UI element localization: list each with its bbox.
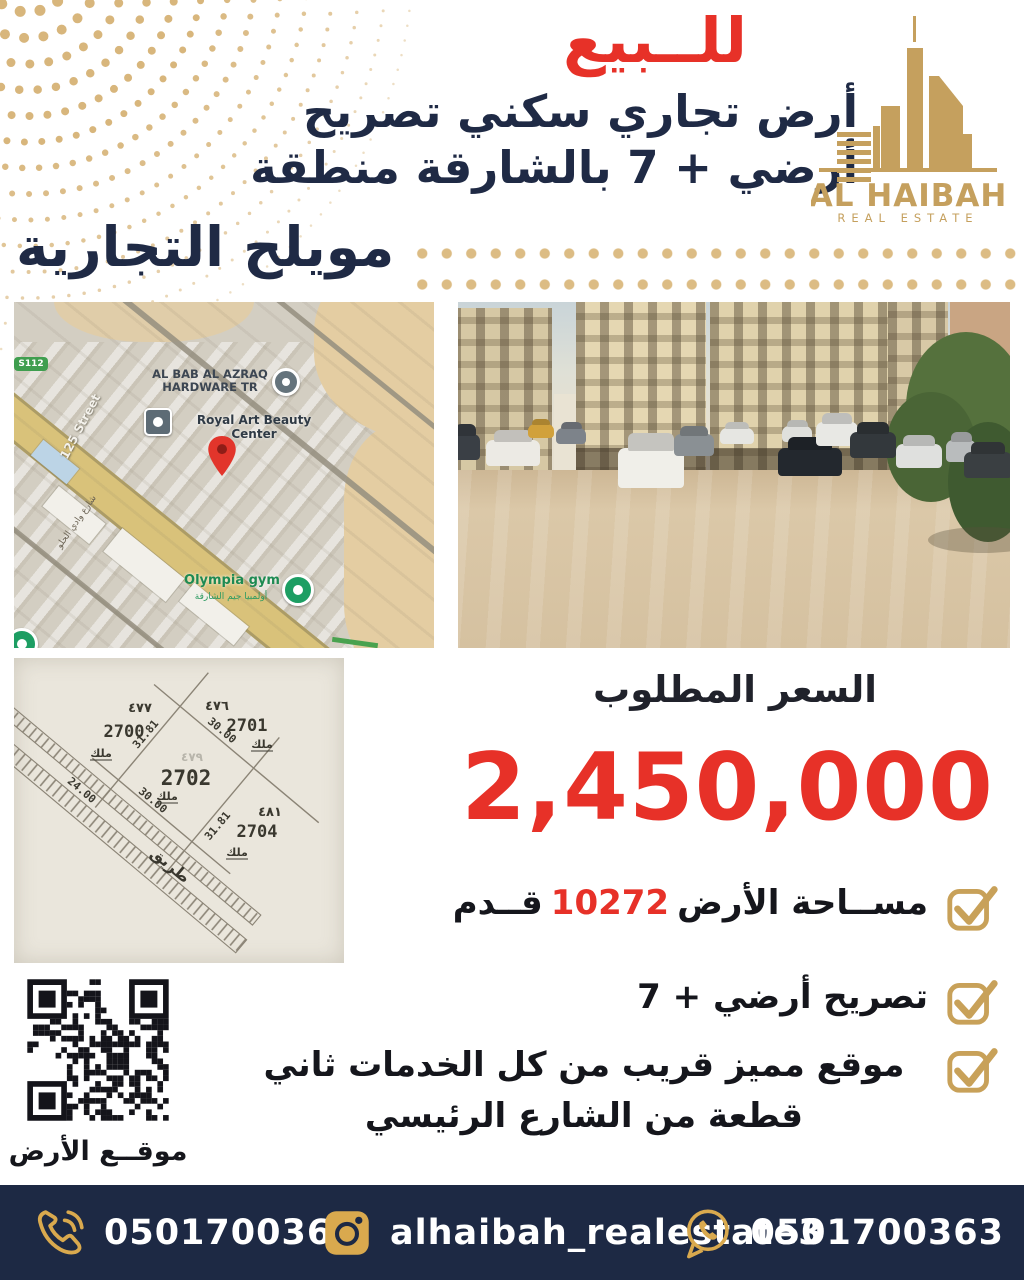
sketch-owner-label: ملك xyxy=(251,738,273,751)
sketch-owner-label: ملك xyxy=(156,790,178,803)
price-value: 2,450,000 xyxy=(440,736,1015,838)
sketch-plot-num-ar: ٤٧٩ xyxy=(181,750,204,764)
real-estate-flyer: للــبيع أرض تجاري سكني تصريح أرضي + 7 با… xyxy=(0,0,1024,1280)
al-haibah-logo: AL HAIBAH REAL ESTATE xyxy=(811,14,1006,224)
sketch-neighbor1-num: ٤٧٧ xyxy=(128,701,152,716)
check-icon xyxy=(944,876,1002,934)
photo-car xyxy=(458,434,480,460)
headline-line1: أرض تجاري سكني تصريح xyxy=(185,84,858,140)
sketch-dim-bottom-right: 31.81 xyxy=(202,809,233,843)
sketch-neighbor2-plot: 2701 xyxy=(227,716,268,736)
sketch-owner-label: ملك xyxy=(90,747,112,760)
logo-name: AL HAIBAH xyxy=(811,178,1006,214)
headline-line2: أرضي + 7 بالشارقة منطقة xyxy=(185,140,858,196)
area-value: 10272 xyxy=(551,883,669,923)
photo-car xyxy=(556,428,586,444)
gold-dots-row-decoration xyxy=(408,236,1024,298)
footer-contact-bar: 0501700363 alhaibah_realestate3 05017003… xyxy=(0,1185,1024,1280)
photo-car xyxy=(850,432,896,458)
photo-car xyxy=(964,452,1010,478)
photo-car xyxy=(896,444,942,468)
photo-car xyxy=(674,434,714,456)
map-poi-gym-ar: أولمبيا جيم الشارقة xyxy=(176,592,286,602)
map-poi-hardware: AL BAB AL AZRAQ HARDWARE TR xyxy=(140,368,280,394)
map-pin-gym xyxy=(282,574,314,606)
sketch-owner-label: ملك xyxy=(226,846,248,859)
phone-number-2: 0501700363 xyxy=(750,1213,1004,1253)
sketch-neighbor3-plot: 2704 xyxy=(237,822,278,842)
feature-permit-text: تصريح أرضي + 7 xyxy=(637,972,928,1023)
map-pin-beauty xyxy=(144,408,172,436)
price-label: السعر المطلوب xyxy=(460,668,1010,711)
map-pin-hardware xyxy=(272,368,300,396)
feature-location-text: موقع مميز قريب من كل الخدمات ثاني قطعة م… xyxy=(240,1040,928,1142)
photo-car xyxy=(720,428,754,444)
feature-area-text: مســاحة الأرض10272قــدم xyxy=(453,878,928,929)
qr-block: موقــع الأرض xyxy=(8,968,188,1167)
sketch-plot-number: 2702 xyxy=(161,766,212,790)
feature-permit: تصريح أرضي + 7 xyxy=(637,972,1002,1028)
instagram-icon xyxy=(318,1204,376,1262)
qr-caption: موقــع الأرض xyxy=(8,1136,188,1167)
property-headline: أرض تجاري سكني تصريح أرضي + 7 بالشارقة م… xyxy=(185,84,858,196)
land-photo xyxy=(458,302,1010,648)
sketch-neighbor2-num: ٤٧٦ xyxy=(205,699,229,714)
map-poi-beauty: Royal Art Beauty Center xyxy=(174,414,334,442)
logo-building-icon xyxy=(819,16,997,182)
phone-icon xyxy=(32,1204,90,1262)
whatsapp-icon xyxy=(678,1204,736,1262)
for-sale-title: للــبيع xyxy=(563,10,747,72)
photo-car xyxy=(778,448,842,476)
satellite-map-image: S112 125 Street شارع وادي الحلو AL BAB A… xyxy=(14,302,434,648)
qr-code[interactable] xyxy=(16,968,180,1132)
plot-sketch-image: 24.00 طريق 30.00 30.00 31.81 31.81 ٤٧٧ 2… xyxy=(14,658,344,963)
map-route-badge: S112 xyxy=(14,357,48,371)
check-icon xyxy=(944,970,1002,1028)
check-icon xyxy=(944,1038,1002,1096)
map-poi-gym: Olympia gym xyxy=(172,574,292,589)
logo-subtitle: REAL ESTATE xyxy=(837,211,978,224)
feature-location: موقع مميز قريب من كل الخدمات ثاني قطعة م… xyxy=(240,1040,1002,1142)
sketch-neighbor1-plot: 2700 xyxy=(104,722,145,742)
area-title: مويلح التجارية xyxy=(16,212,394,284)
feature-area: مســاحة الأرض10272قــدم xyxy=(453,878,1002,934)
footer-phone-2[interactable]: 0501700363 xyxy=(678,1185,1004,1280)
photo-car xyxy=(486,440,540,466)
map-pin-location xyxy=(208,436,236,476)
sketch-neighbor3-num: ٤٨١ xyxy=(258,805,282,820)
footer-phone-1[interactable]: 0501700363 xyxy=(32,1185,358,1280)
photo-bus xyxy=(528,424,554,438)
